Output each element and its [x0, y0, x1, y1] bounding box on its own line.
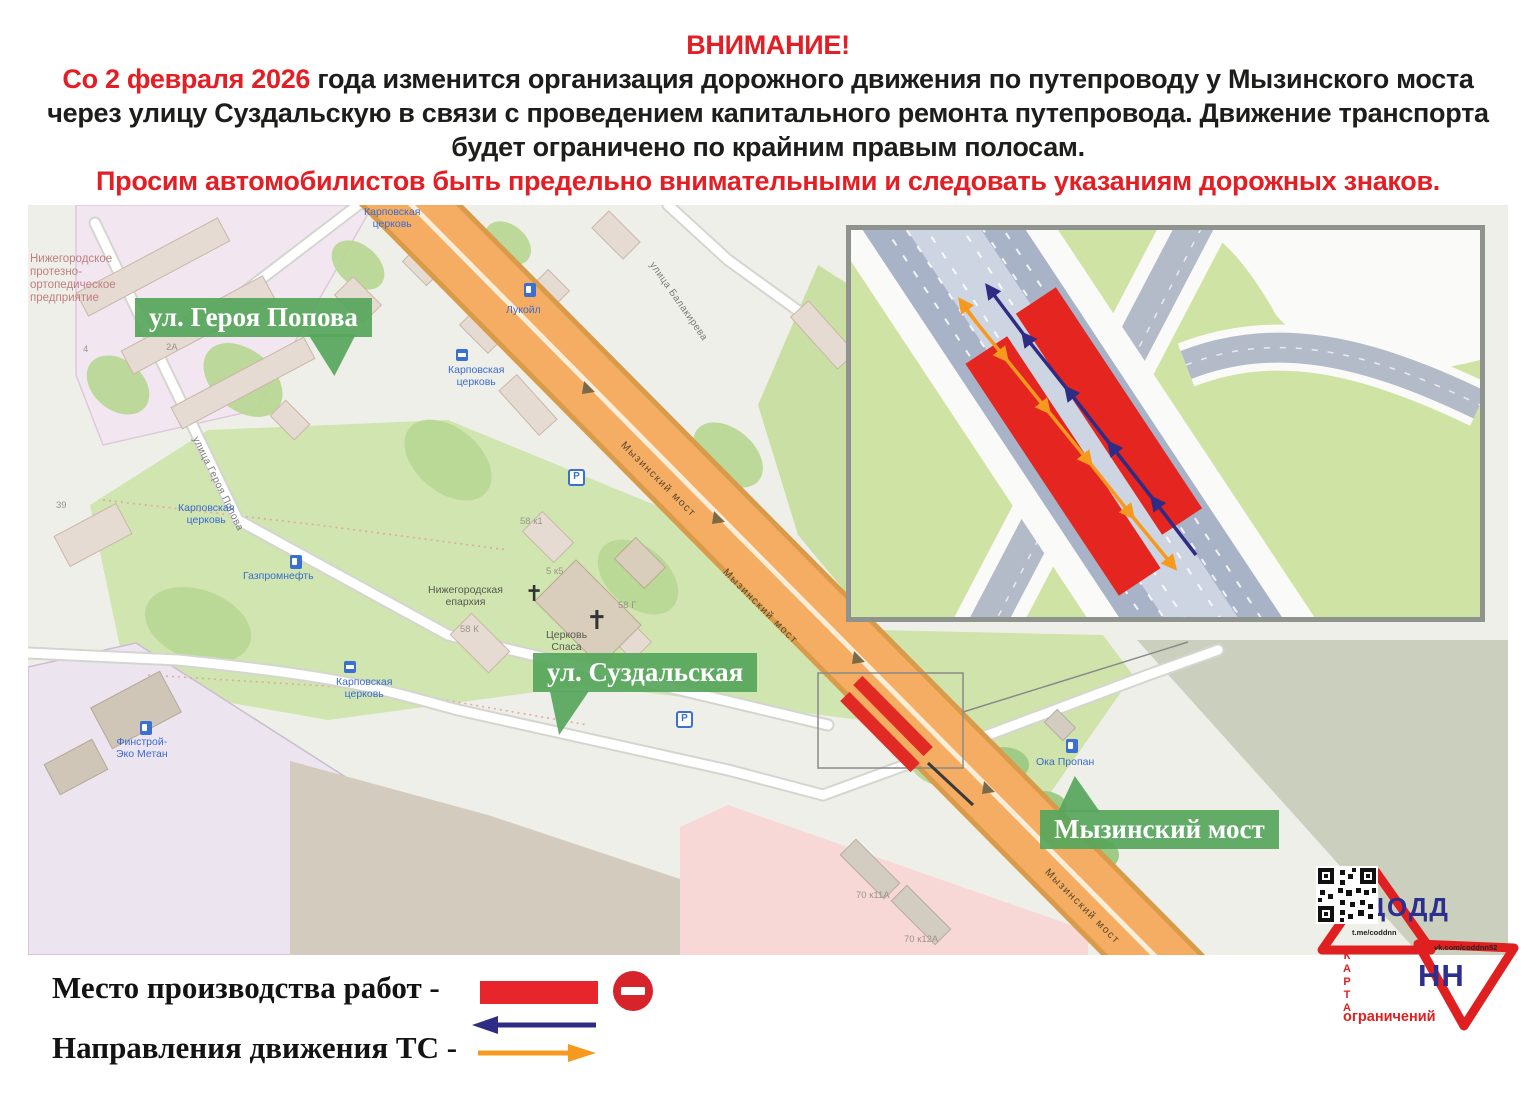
map-label: Карповская церковь — [448, 365, 504, 389]
no-entry-icon — [613, 971, 653, 1011]
logo-telegram-link: t.me/coddnn — [1352, 928, 1397, 937]
map-label: 58 к1 — [520, 517, 543, 528]
map-label: 70 к11А — [856, 891, 890, 902]
logo-city-abbr: НН — [1418, 958, 1465, 994]
notice-body: Со 2 февраля 2026 года изменится организ… — [38, 62, 1498, 164]
map-label: 39 — [56, 501, 67, 512]
attention-title: ВНИМАНИЕ! — [38, 28, 1498, 62]
bridge-callout-myzinsky: Мызинский мост — [1040, 810, 1279, 849]
logo-vk-link: vk.com/coddnn52 — [1434, 943, 1497, 952]
map-label: Газпромнефть — [243, 571, 314, 583]
codd-nn-logo: ЦОДД t.me/coddnn vk.com/coddnn52 НН КАРТ… — [1316, 866, 1526, 1038]
qr-code-icon — [1316, 866, 1378, 924]
map-label: Нижегородская епархия — [428, 585, 503, 609]
work-zone-swatch — [480, 981, 598, 1004]
notice-header: ВНИМАНИЕ! Со 2 февраля 2026 года изменит… — [38, 28, 1498, 198]
inset-artwork — [851, 230, 1480, 617]
notice-warning: Просим автомобилистов быть предельно вни… — [38, 164, 1498, 198]
fuel-icon — [140, 721, 152, 735]
map-label: 5 к5 — [546, 567, 563, 578]
map-label: Карповская церковь — [178, 503, 234, 527]
logo-restrictions-word: ограничений — [1343, 1009, 1436, 1025]
notice-date: Со 2 февраля 2026 — [62, 64, 310, 94]
fuel-icon — [524, 283, 536, 297]
street-callout-geroya-popova: ул. Героя Попова — [135, 298, 372, 337]
map-label: Мызинский мост — [720, 567, 800, 647]
legend-work-zone-label: Место производства работ - — [52, 969, 440, 1007]
map-label: Карповская церковь — [336, 677, 392, 701]
parking-icon — [568, 469, 585, 486]
map-label: Ока Пропан — [1036, 757, 1094, 769]
logo-map-word: КАРТА — [1338, 950, 1352, 1015]
map-label: Финстрой- Эко Метан — [116, 737, 168, 761]
map-label: улица Балакирева — [647, 260, 710, 343]
city-map: ✝ ✝ Нижегородское протезно- ортопедическ… — [28, 205, 1508, 955]
map-label: Церковь Спаса — [546, 630, 587, 654]
fuel-icon — [290, 555, 302, 569]
map-label: 58 Г — [618, 601, 636, 612]
legend-directions-label: Направления движения ТС - — [52, 1029, 457, 1067]
map-label: Мызинский мост — [618, 440, 698, 520]
map-label: 2А — [166, 343, 178, 354]
street-callout-suzdalskaya: ул. Суздальская — [533, 653, 757, 692]
logo-org-name: ЦОДД — [1366, 892, 1450, 923]
bus-icon — [344, 661, 356, 673]
map-label: Мызинский мост — [1042, 867, 1122, 947]
map-label: Лукойл — [506, 305, 541, 317]
map-label: 58 К — [460, 625, 479, 636]
fuel-icon — [1066, 739, 1078, 753]
bus-icon — [456, 349, 468, 361]
direction-arrows-icon — [468, 1015, 608, 1067]
map-label: 4 — [83, 345, 88, 356]
map-label: Нижегородское протезно- ортопедическое п… — [30, 253, 116, 305]
map-label: Карповская церковь — [364, 207, 420, 231]
bridge-zoom-inset — [846, 225, 1485, 622]
parking-icon — [676, 711, 693, 728]
map-label: 70 к12А — [904, 935, 938, 946]
